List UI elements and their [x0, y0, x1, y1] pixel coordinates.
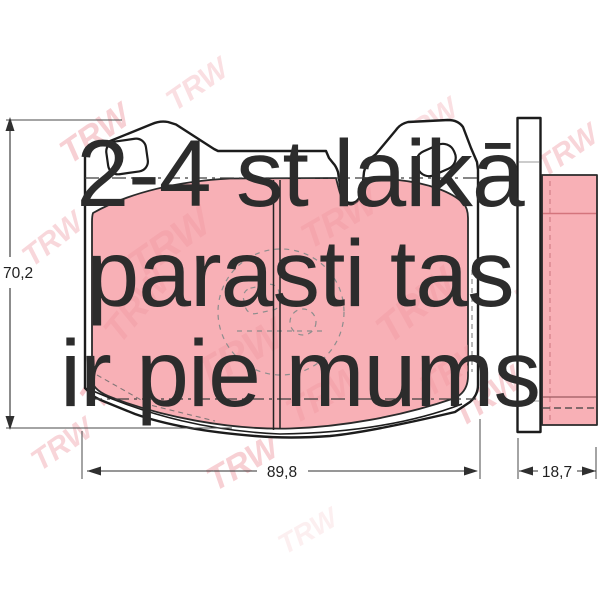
overlay-line-2: parasti tas — [0, 224, 600, 324]
arrowhead-right — [582, 467, 596, 476]
overlay-line-3: ir pie mums — [0, 324, 600, 424]
brake-pad-product-image: TRW TRW TRW TRW TRW TRW TRW TRW TRW TRW … — [0, 0, 600, 600]
arrowhead-left — [519, 467, 533, 476]
arrowhead-right — [464, 467, 478, 476]
trw-watermark: TRW — [273, 500, 346, 560]
dimension-thickness: 18,7 — [518, 438, 596, 481]
arrowhead-left — [87, 467, 101, 476]
availability-overlay: 2-4 st laikā parasti tas ir pie mums — [0, 124, 600, 424]
width-value: 89,8 — [267, 464, 297, 481]
thickness-value: 18,7 — [542, 464, 572, 481]
overlay-line-1: 2-4 st laikā — [0, 124, 600, 224]
trw-watermark: TRW — [160, 50, 237, 117]
